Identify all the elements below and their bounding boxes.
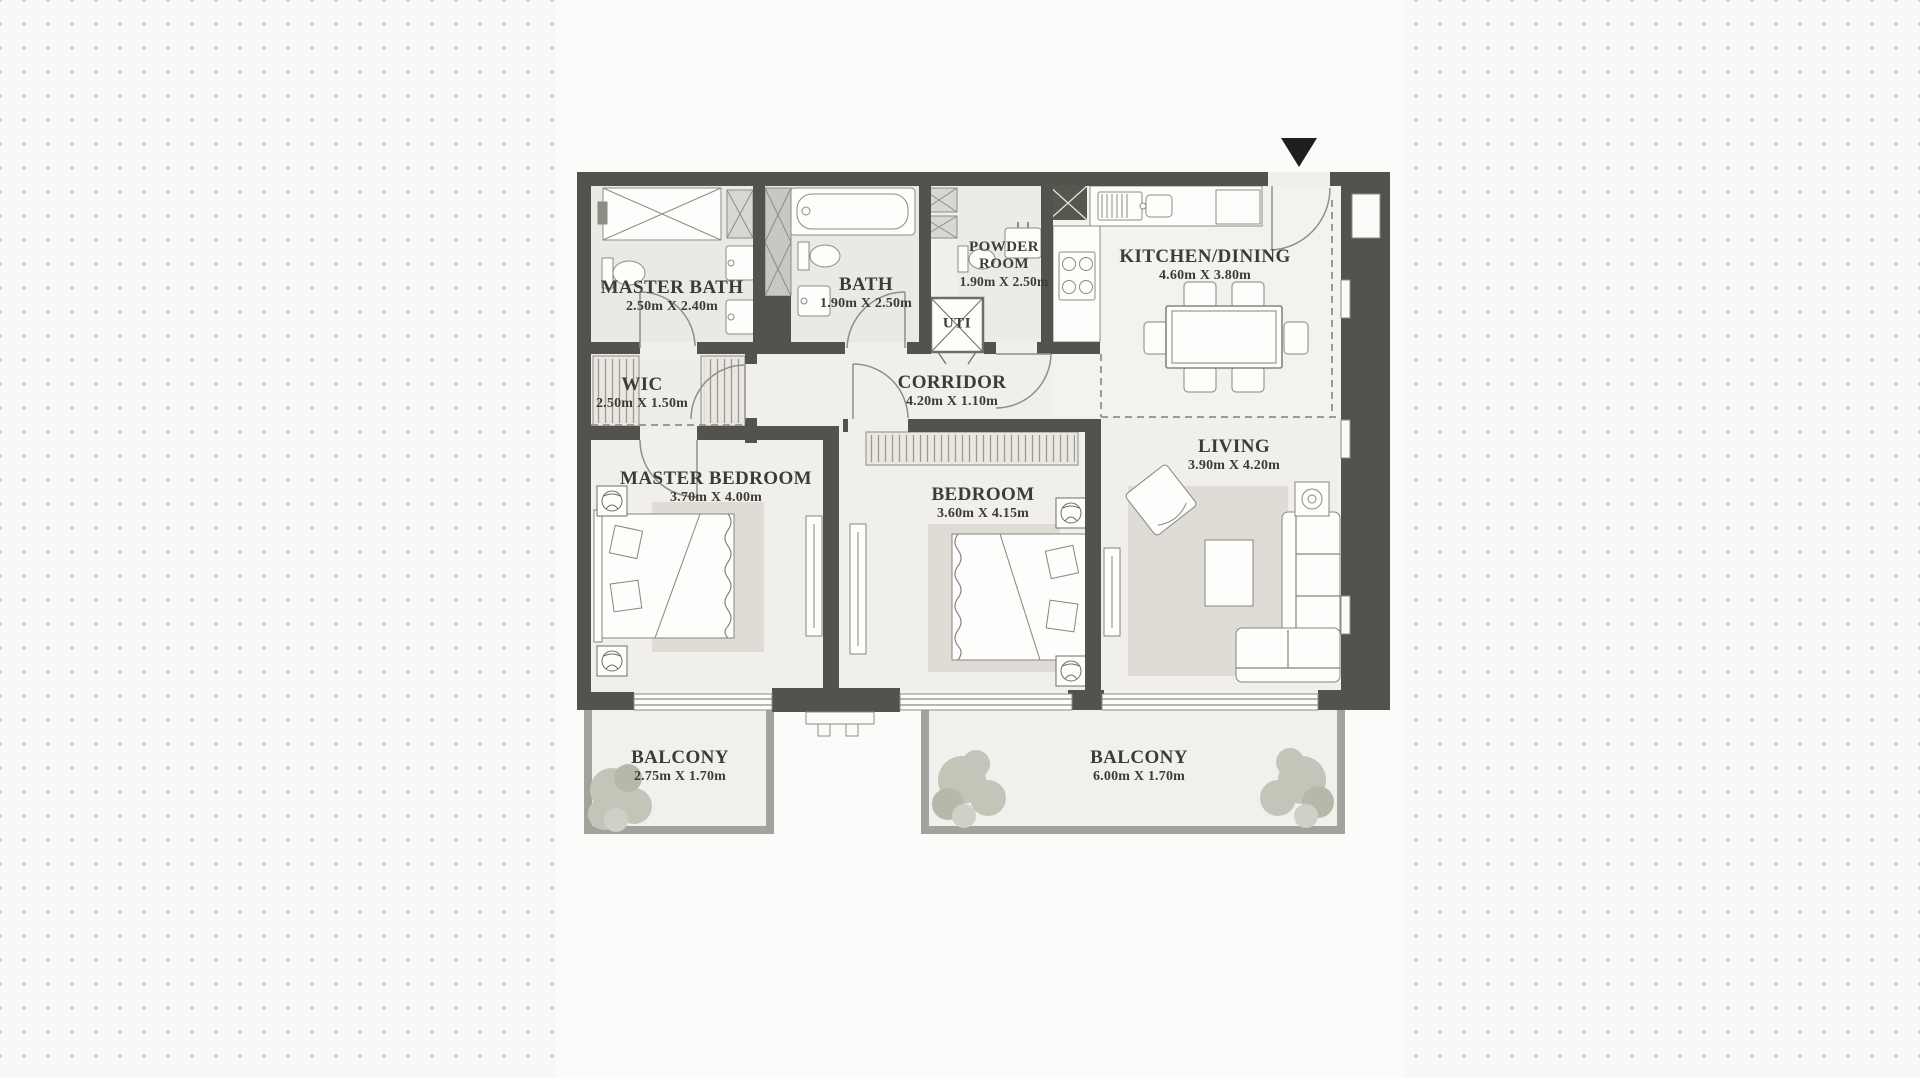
- kitchen-counter-hob: [1053, 226, 1100, 342]
- floorplan-page: { "page": { "background_color": "#f8f8f7…: [0, 0, 1920, 1078]
- duct-column: [765, 188, 791, 296]
- bathtub: [790, 188, 915, 235]
- sink-bath: [798, 286, 830, 316]
- bed-master-bedroom: [594, 510, 734, 642]
- sprinkler-symbol: [597, 646, 627, 676]
- wardrobe-bedroom: [866, 432, 1078, 465]
- closet-shaft-master-bath: [727, 190, 753, 238]
- console-bedroom: [850, 524, 866, 654]
- shaft-kitchen-corner: [1049, 186, 1087, 220]
- console-living: [1104, 548, 1120, 636]
- entrance-arrow-icon: [1281, 138, 1317, 167]
- balcony-windows: [634, 694, 1318, 710]
- pier-castellation: [806, 712, 874, 736]
- closet-wic-right: [701, 356, 745, 426]
- coffee-table: [1205, 540, 1253, 606]
- sprinkler-symbol: [1056, 656, 1086, 686]
- bed-bedroom: [952, 530, 1094, 664]
- floor-plan-drawing: [0, 0, 1920, 1078]
- floor-lamp-box: [1295, 482, 1329, 516]
- kitchen-counter-top: [1090, 186, 1262, 226]
- closet-wic-left: [593, 356, 639, 426]
- sprinkler-symbol: [597, 486, 627, 516]
- console-master-bedroom: [806, 516, 822, 636]
- sprinkler-symbol: [1056, 498, 1086, 528]
- shower-master-bath: [598, 188, 721, 240]
